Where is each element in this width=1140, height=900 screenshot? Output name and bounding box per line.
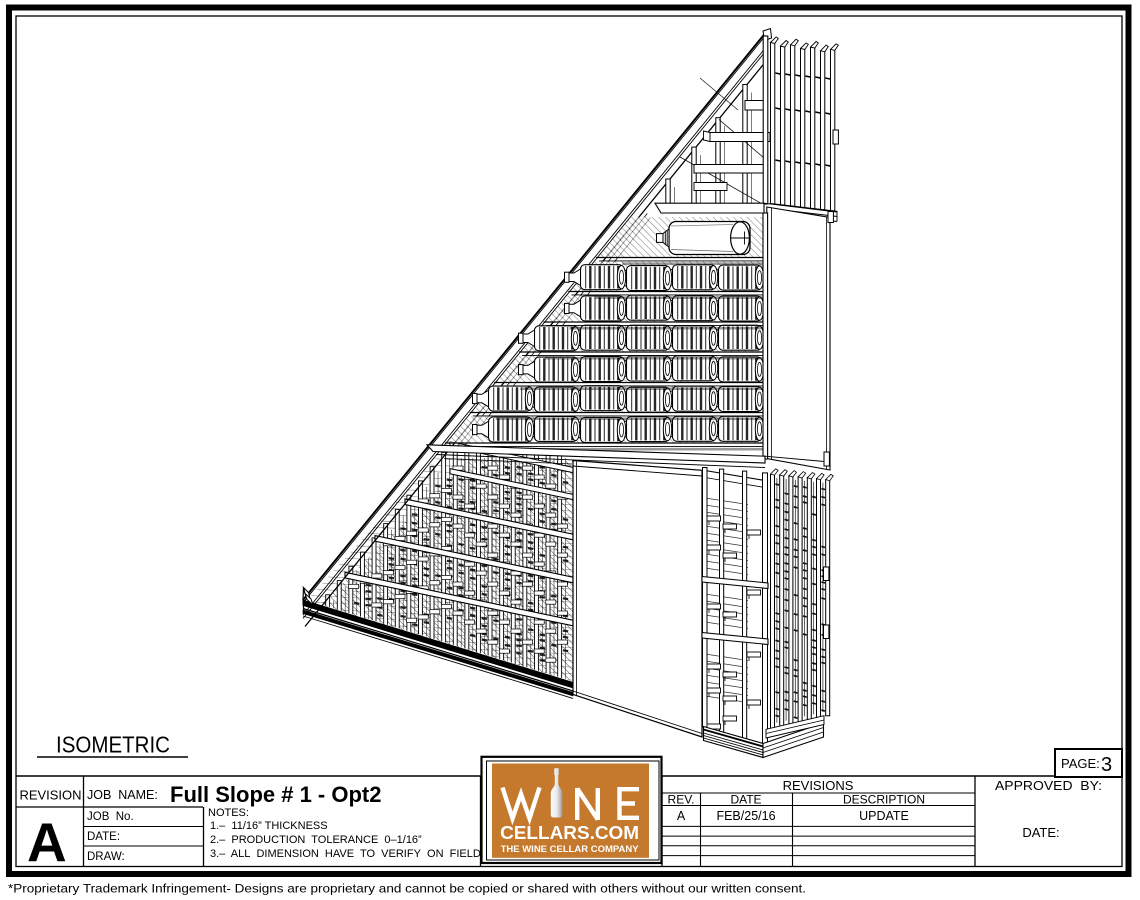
- svg-text:APPROVED BY:: APPROVED BY:: [995, 778, 1102, 793]
- svg-text:NOTES:: NOTES:: [208, 807, 249, 819]
- svg-text:DATE:: DATE:: [1022, 825, 1059, 840]
- svg-text:DATE: DATE: [730, 793, 761, 807]
- svg-text:CELLARS.COM: CELLARS.COM: [500, 822, 639, 843]
- svg-text:A: A: [677, 809, 686, 823]
- svg-text:Full Slope # 1 - Opt2: Full Slope # 1 - Opt2: [170, 782, 381, 807]
- svg-text:UPDATE: UPDATE: [859, 809, 909, 823]
- svg-text:ISOMETRIC: ISOMETRIC: [56, 732, 170, 758]
- svg-text:THE WINE CELLAR COMPANY: THE WINE CELLAR COMPANY: [501, 844, 640, 854]
- svg-text:DRAW:: DRAW:: [87, 851, 125, 863]
- svg-text:A: A: [27, 811, 67, 873]
- svg-text:PAGE:: PAGE:: [1061, 756, 1100, 771]
- svg-text:3: 3: [1101, 754, 1112, 776]
- svg-text:*Proprietary Trademark Infring: *Proprietary Trademark Infringement- Des…: [8, 882, 806, 896]
- svg-text:REVISIONS: REVISIONS: [783, 778, 854, 793]
- svg-text:FEB/25/16: FEB/25/16: [716, 809, 775, 823]
- svg-text:2.– PRODUCTION TOLERANCE 0–: 2.– PRODUCTION TOLERANCE 0–1/16”: [210, 834, 422, 846]
- svg-text:1.– 11/16” THICKNESS: 1.– 11/16” THICKNESS: [210, 820, 328, 832]
- svg-text:DATE:: DATE:: [87, 831, 120, 843]
- svg-text:REVISION: REVISION: [20, 788, 82, 803]
- svg-text:JOB NAME:: JOB NAME:: [87, 788, 158, 802]
- svg-text:3.– ALL DIMENSION HAVE TO: 3.– ALL DIMENSION HAVE TO VERIFY ON FIEL…: [210, 848, 481, 860]
- svg-text:REV.: REV.: [668, 793, 695, 807]
- svg-text:DESCRIPTION: DESCRIPTION: [843, 793, 925, 807]
- svg-text:JOB No.: JOB No.: [87, 811, 134, 823]
